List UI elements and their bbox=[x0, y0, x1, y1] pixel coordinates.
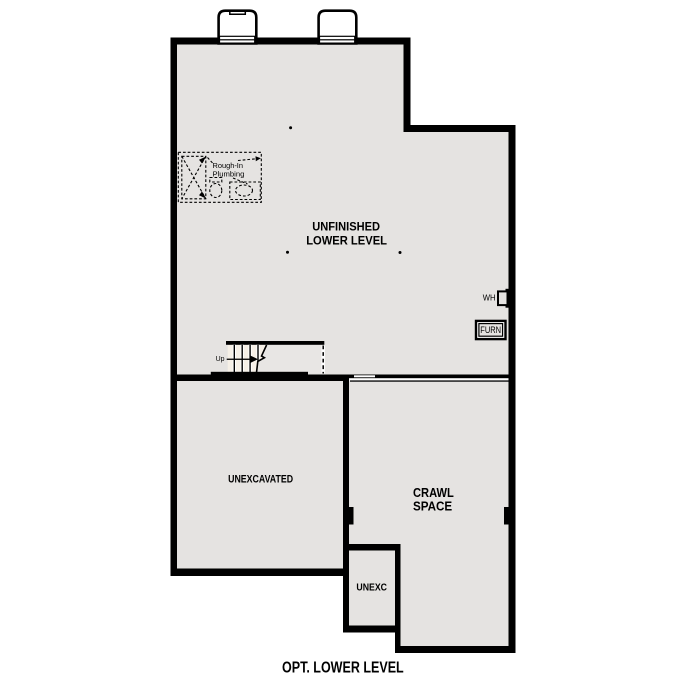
svg-text:CRAWL: CRAWL bbox=[413, 486, 454, 500]
svg-text:LOWER LEVEL: LOWER LEVEL bbox=[306, 233, 387, 247]
svg-text:Up: Up bbox=[216, 354, 225, 363]
svg-text:UNFINISHED: UNFINISHED bbox=[312, 220, 380, 234]
svg-text:OPT. LOWER LEVEL: OPT. LOWER LEVEL bbox=[282, 660, 404, 677]
svg-text:Plumbing: Plumbing bbox=[213, 171, 245, 178]
svg-text:SPACE: SPACE bbox=[413, 499, 452, 513]
svg-text:UNEXC: UNEXC bbox=[356, 582, 387, 593]
svg-text:Rough-In: Rough-In bbox=[213, 163, 244, 170]
svg-text:FURN: FURN bbox=[480, 325, 501, 335]
svg-text:UNEXCAVATED: UNEXCAVATED bbox=[228, 474, 293, 486]
svg-text:WH: WH bbox=[483, 292, 496, 302]
